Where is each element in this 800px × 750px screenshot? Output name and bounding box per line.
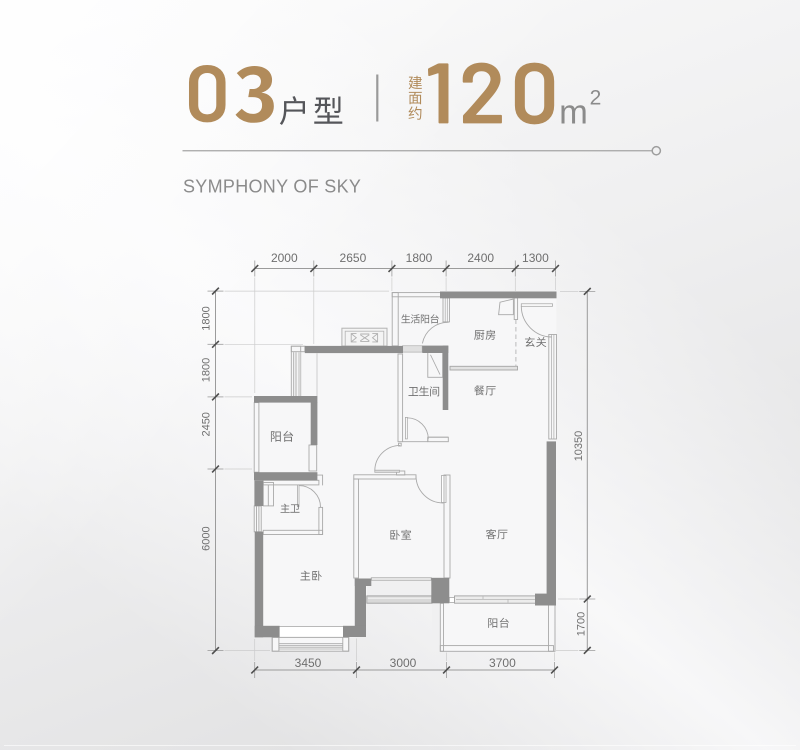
- svg-text:3000: 3000: [390, 656, 417, 670]
- svg-text:2650: 2650: [340, 251, 367, 265]
- svg-text:1800: 1800: [406, 251, 433, 265]
- svg-text:SYMPHONY OF SKY: SYMPHONY OF SKY: [183, 176, 361, 196]
- svg-text:3700: 3700: [489, 656, 516, 670]
- svg-text:2450: 2450: [200, 412, 212, 436]
- svg-text:1800: 1800: [200, 306, 212, 330]
- svg-text:3450: 3450: [295, 656, 322, 670]
- svg-text:1700: 1700: [576, 612, 588, 636]
- svg-text:2000: 2000: [271, 251, 298, 265]
- svg-text:2: 2: [590, 87, 602, 110]
- svg-text:6000: 6000: [200, 526, 212, 550]
- svg-text:1300: 1300: [522, 251, 549, 265]
- svg-text:2400: 2400: [467, 251, 494, 265]
- svg-text:1800: 1800: [200, 358, 212, 382]
- svg-text:10350: 10350: [573, 431, 585, 462]
- svg-text:m: m: [559, 93, 588, 131]
